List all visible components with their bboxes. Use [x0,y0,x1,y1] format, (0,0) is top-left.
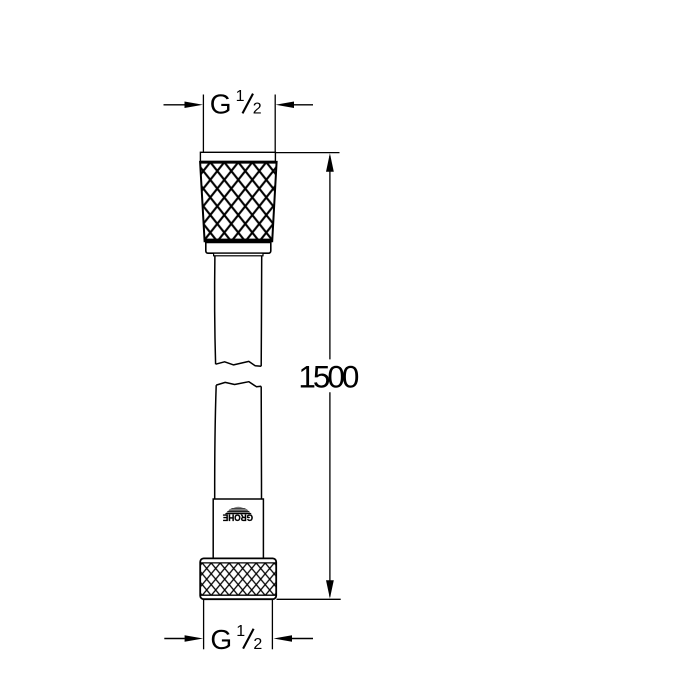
svg-text:GROHE: GROHE [222,512,253,523]
svg-text:G: G [210,624,232,655]
svg-text:1: 1 [236,623,245,640]
svg-text:G: G [210,89,232,120]
svg-text:2: 2 [253,101,262,118]
svg-text:1: 1 [236,88,245,105]
svg-text:2: 2 [253,636,262,653]
svg-text:1500: 1500 [298,359,359,395]
